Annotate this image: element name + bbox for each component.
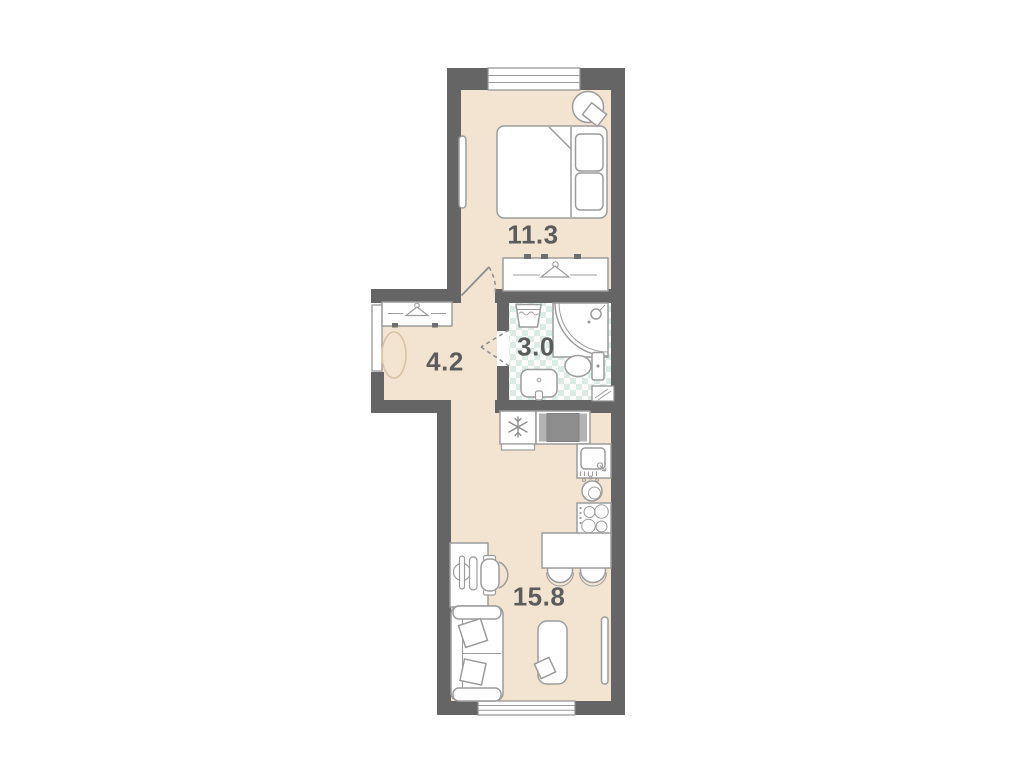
hallway-area-label: 4.2	[426, 347, 464, 378]
passage-floor	[451, 400, 495, 413]
hallway-closet	[382, 302, 452, 328]
washing-machine	[536, 411, 590, 444]
double-bed	[497, 126, 607, 218]
sofa-armrest	[453, 688, 501, 701]
fridge	[500, 411, 536, 450]
wall-bath-left-upper	[497, 303, 509, 331]
stove	[577, 503, 611, 535]
kitchen-area-label: 15.8	[513, 582, 566, 613]
dining-table	[542, 533, 611, 568]
wall-entrance-side	[371, 372, 384, 401]
bedroom-area-label: 11.3	[507, 220, 558, 251]
mirror	[459, 136, 466, 208]
sofa-armrest	[453, 606, 501, 619]
rug	[534, 621, 567, 684]
bedroom-wardrobe	[503, 254, 608, 291]
bedroom-window	[488, 68, 580, 90]
sofa-pillow	[460, 659, 486, 685]
wall-bath-left-lower	[497, 366, 509, 401]
bathroom-area-label: 3.0	[517, 332, 555, 363]
floor-plan-drawing	[0, 0, 1024, 768]
laundry-basket	[516, 305, 541, 328]
monitor-screen	[460, 556, 465, 589]
sofa	[451, 606, 503, 701]
pillow	[576, 173, 604, 210]
kitchen-sink	[577, 444, 611, 478]
floor-plan: 11.3 4.2 3.0 15.8	[0, 0, 1024, 768]
vent-shaft	[592, 386, 614, 401]
pillow	[576, 134, 604, 171]
wall-hallway-top	[371, 289, 461, 303]
corner-shower	[553, 303, 608, 357]
desk-accessory	[470, 557, 478, 590]
bathroom-sink	[521, 370, 557, 401]
entrance-door	[372, 305, 382, 371]
tv	[602, 617, 609, 684]
kitchen-window	[478, 701, 575, 715]
wall-kitchen-left	[437, 400, 451, 715]
